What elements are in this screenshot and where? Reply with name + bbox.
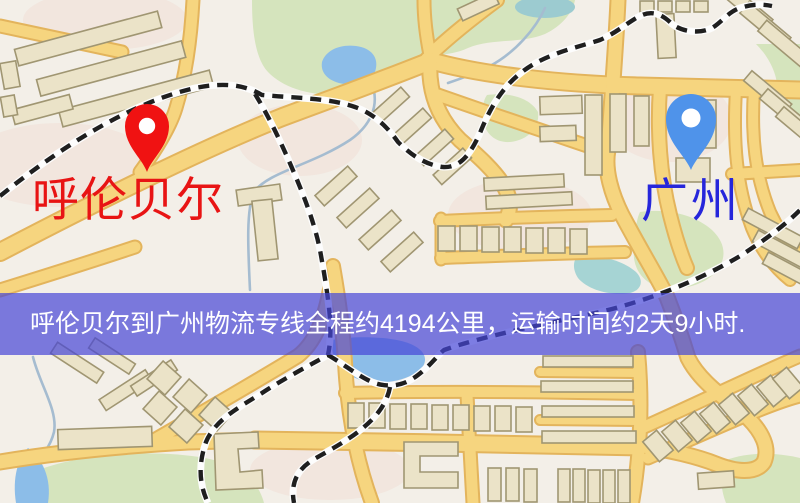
map-marker-icon	[658, 92, 724, 172]
destination-label: 广州	[641, 177, 741, 224]
origin-label: 呼伦贝尔	[32, 176, 224, 223]
stream-bottom-left	[33, 357, 55, 460]
teal-streak	[574, 257, 641, 294]
destination-pin[interactable]	[658, 92, 724, 177]
street-map	[0, 0, 800, 503]
route-banner: 呼伦贝尔到广州物流专线全程约4194公里，运输时间约2天9小时.	[0, 293, 800, 355]
origin-pin[interactable]	[118, 100, 176, 179]
map-marker-icon	[118, 100, 176, 174]
route-banner-text: 呼伦贝尔到广州物流专线全程约4194公里，运输时间约2天9小时.	[30, 293, 745, 355]
map-canvas: 呼伦贝尔 广州 呼伦贝尔到广州物流专线全程约4194公里，运输时间约2天9小时.	[0, 0, 800, 503]
